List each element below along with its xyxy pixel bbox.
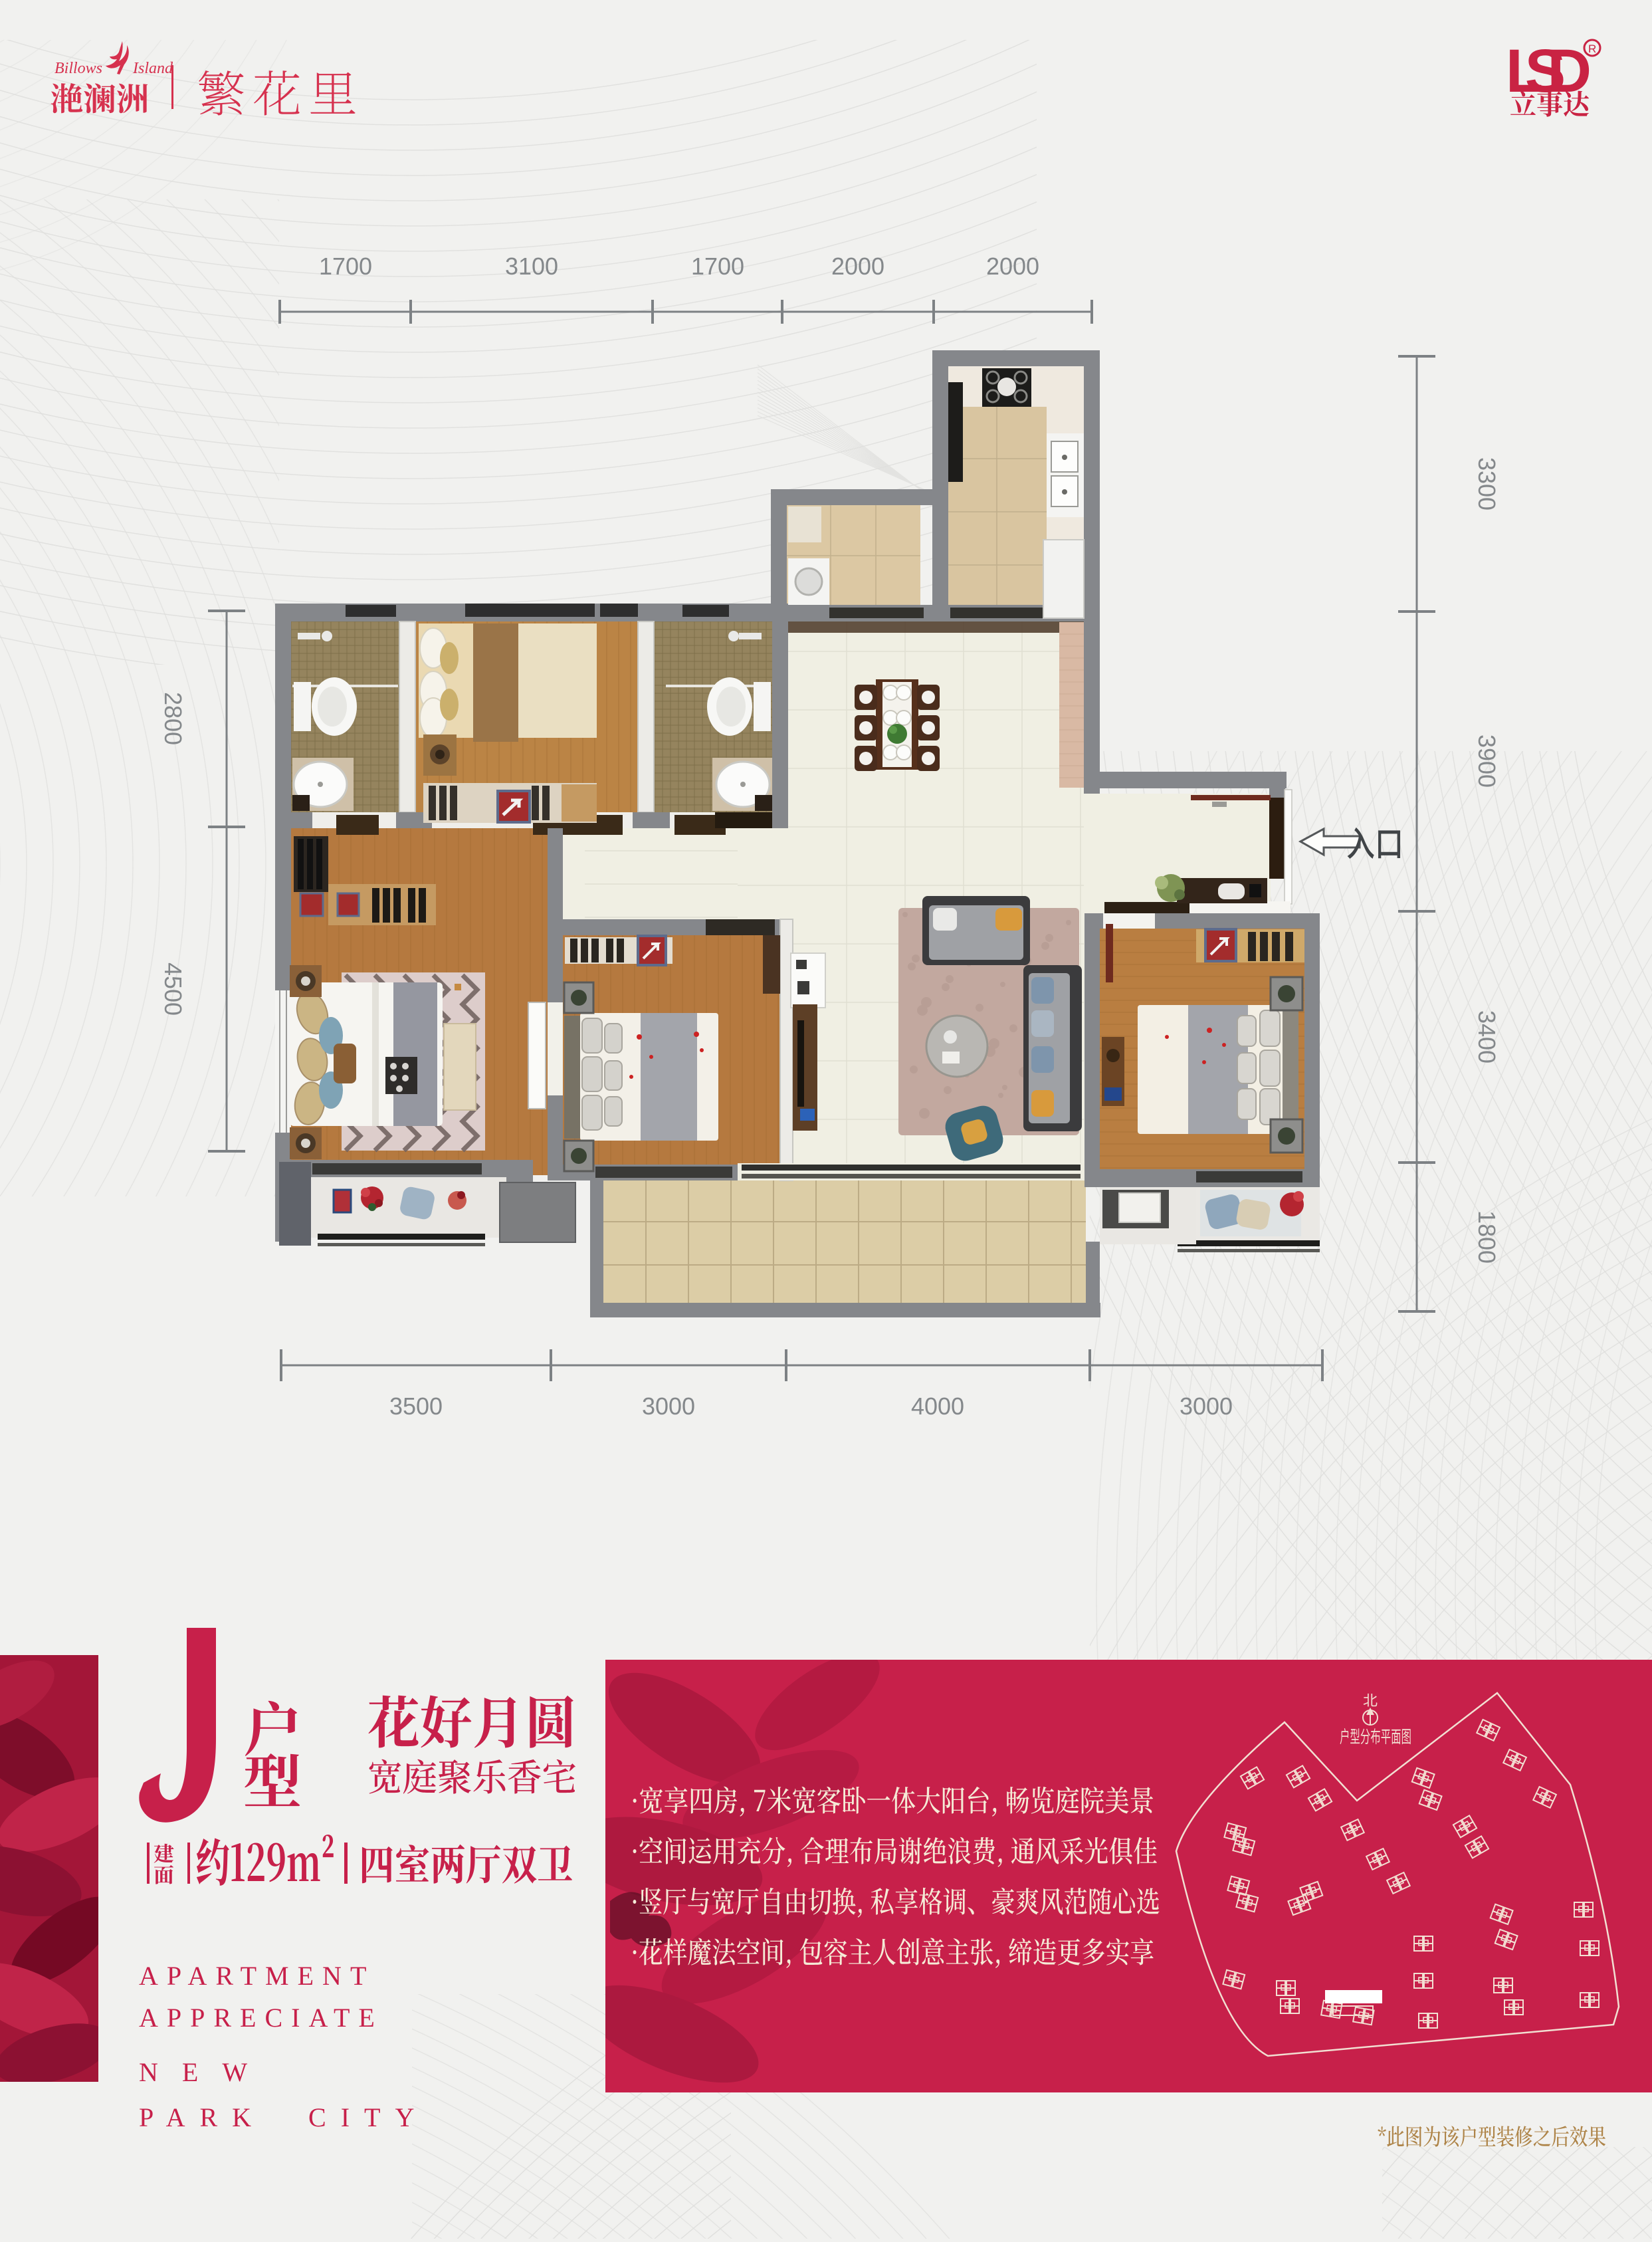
svg-text:1700: 1700 (691, 253, 744, 280)
svg-text:Island: Island (132, 60, 173, 77)
svg-text:2000: 2000 (831, 253, 884, 280)
svg-text:1800: 1800 (1473, 1210, 1500, 1264)
svg-text:2000: 2000 (986, 253, 1039, 280)
svg-text:2800: 2800 (159, 692, 187, 745)
svg-text:3900: 3900 (1473, 734, 1500, 788)
svg-text:3500: 3500 (389, 1393, 443, 1420)
svg-text:3100: 3100 (505, 253, 558, 280)
svg-text:NEW: NEW (139, 2057, 271, 2087)
svg-text:4500: 4500 (159, 962, 187, 1016)
svg-text:3400: 3400 (1473, 1010, 1500, 1064)
svg-text:3000: 3000 (642, 1393, 695, 1420)
svg-text:R: R (1588, 43, 1596, 55)
svg-text:1700: 1700 (319, 253, 372, 280)
svg-text:APPRECIATE: APPRECIATE (139, 2003, 383, 2033)
svg-text:APARTMENT: APARTMENT (139, 1961, 375, 1991)
svg-text:3300: 3300 (1473, 457, 1500, 510)
svg-text:4000: 4000 (911, 1393, 964, 1420)
svg-text:PARK CITY: PARK CITY (139, 2102, 429, 2132)
svg-text:LSD: LSD (1506, 37, 1590, 105)
svg-text:3000: 3000 (1180, 1393, 1233, 1420)
svg-text:Billows: Billows (54, 60, 102, 77)
